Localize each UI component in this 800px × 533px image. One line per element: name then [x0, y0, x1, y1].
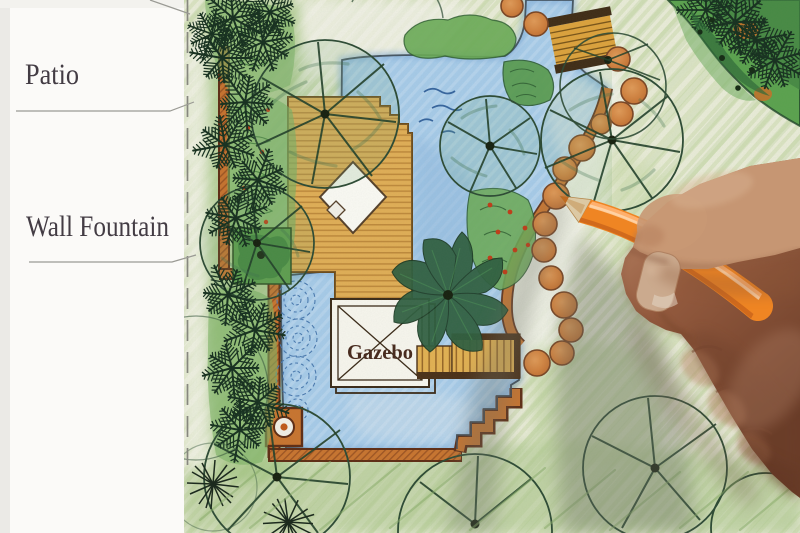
svg-text:Wall Fountain: Wall Fountain — [26, 210, 169, 243]
svg-text:Patio: Patio — [25, 58, 79, 91]
